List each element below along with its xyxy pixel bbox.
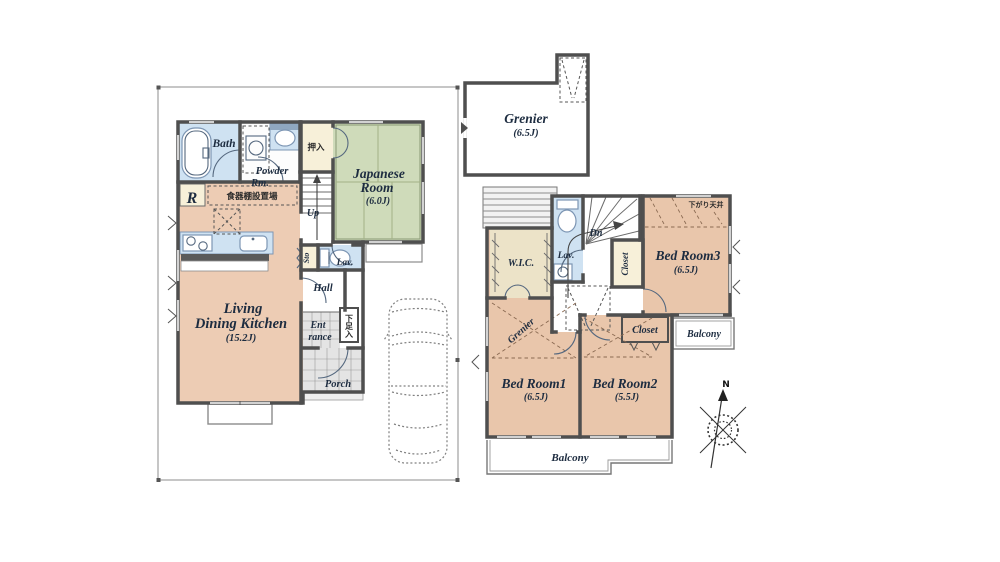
label-lav-1f: Lav.	[336, 258, 354, 268]
label-hall: Hall	[312, 283, 332, 294]
label-bedroom1: Bed Room1	[501, 376, 567, 391]
label-porch: Porch	[325, 379, 351, 390]
label-bedroom2-size: (5.5J)	[615, 392, 639, 403]
label-refrigerator: R	[186, 190, 198, 207]
label-bedroom3-size: (6.5J)	[674, 265, 698, 276]
label-bedroom2: Bed Room2	[592, 376, 658, 391]
label-entrance-2: rance	[308, 332, 332, 343]
label-powder-1: Powder	[256, 166, 290, 177]
label-japanese-room-1: Japanese	[352, 166, 405, 181]
floorplan-page: Bath Powder Rm. R 食器棚設置場 押入 Japanese Roo…	[0, 0, 1000, 562]
label-japanese-room-2: Room	[359, 180, 393, 195]
label-oshiire: 押入	[307, 142, 325, 153]
label-sto: Sto	[302, 253, 311, 264]
label-bath: Bath	[211, 138, 235, 150]
hall-extension	[612, 287, 643, 315]
label-wic: W.I.C.	[508, 258, 534, 269]
label-balcony-main: Balcony	[550, 452, 588, 464]
bathtub	[182, 128, 211, 178]
label-closet-bedroom3: Closet	[620, 252, 630, 276]
label-closet-bedroom2: Closet	[632, 325, 659, 336]
vanity-sink	[270, 124, 300, 150]
label-lav-2f: Lav.	[557, 251, 575, 261]
label-ldk-size: (15.2J)	[226, 333, 257, 344]
veranda	[366, 244, 422, 262]
label-shoe-cabinet: 下足入	[344, 314, 354, 339]
roof-gable-hatch	[483, 187, 557, 228]
label-grenier-size: (6.5J)	[513, 128, 538, 139]
room-ldk	[178, 182, 303, 403]
label-grenier: Grenier	[504, 111, 548, 126]
floorplan-drawing: Bath Powder Rm. R 食器棚設置場 押入 Japanese Roo…	[0, 0, 1000, 562]
label-ldk-1: Living	[223, 301, 263, 317]
label-balcony-side: Balcony	[686, 329, 721, 340]
label-lowered-ceiling: 下がり天井	[689, 200, 724, 209]
label-powder-2: Rm.	[250, 178, 269, 189]
basin-2f	[554, 264, 572, 280]
label-ldk-2: Dining Kitchen	[194, 316, 287, 332]
kitchen-counter	[180, 232, 273, 271]
label-entrance-1: Ent	[309, 320, 326, 331]
label-up: Up	[307, 208, 319, 219]
label-bedroom1-size: (6.5J)	[524, 392, 548, 403]
label-north: N	[722, 380, 730, 390]
label-bedroom3: Bed Room3	[655, 248, 721, 263]
terrace-step	[208, 404, 272, 424]
toilet-2f	[557, 200, 578, 232]
label-dn: Dn	[589, 228, 603, 239]
label-japanese-room-size: (6.0J)	[366, 196, 390, 207]
label-dish-cabinet: 食器棚設置場	[226, 191, 278, 202]
